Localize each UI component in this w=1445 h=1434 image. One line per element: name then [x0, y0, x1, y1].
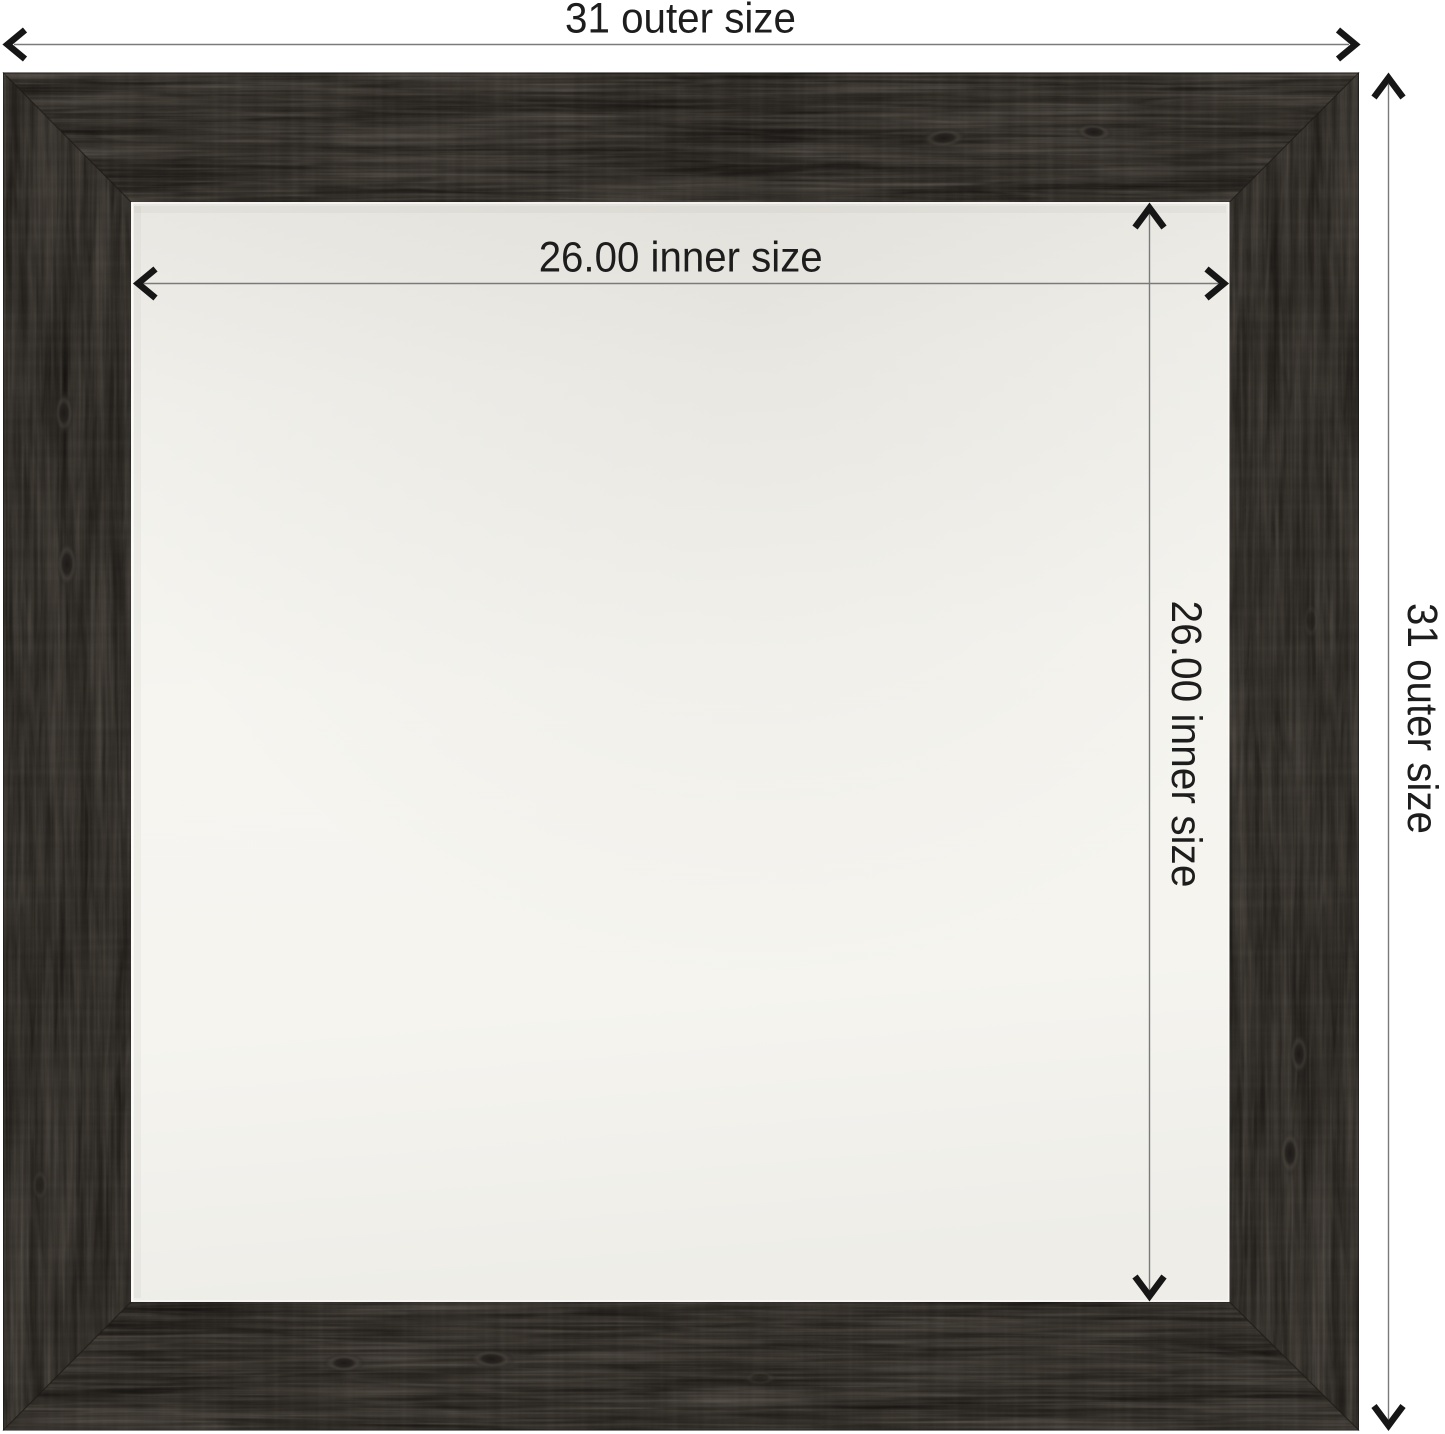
svg-text:26.00 inner size: 26.00 inner size	[539, 233, 823, 281]
svg-text:26.00 inner size: 26.00 inner size	[1162, 601, 1210, 888]
svg-text:31 outer size: 31 outer size	[565, 0, 796, 42]
svg-text:31 outer size: 31 outer size	[1398, 603, 1445, 834]
